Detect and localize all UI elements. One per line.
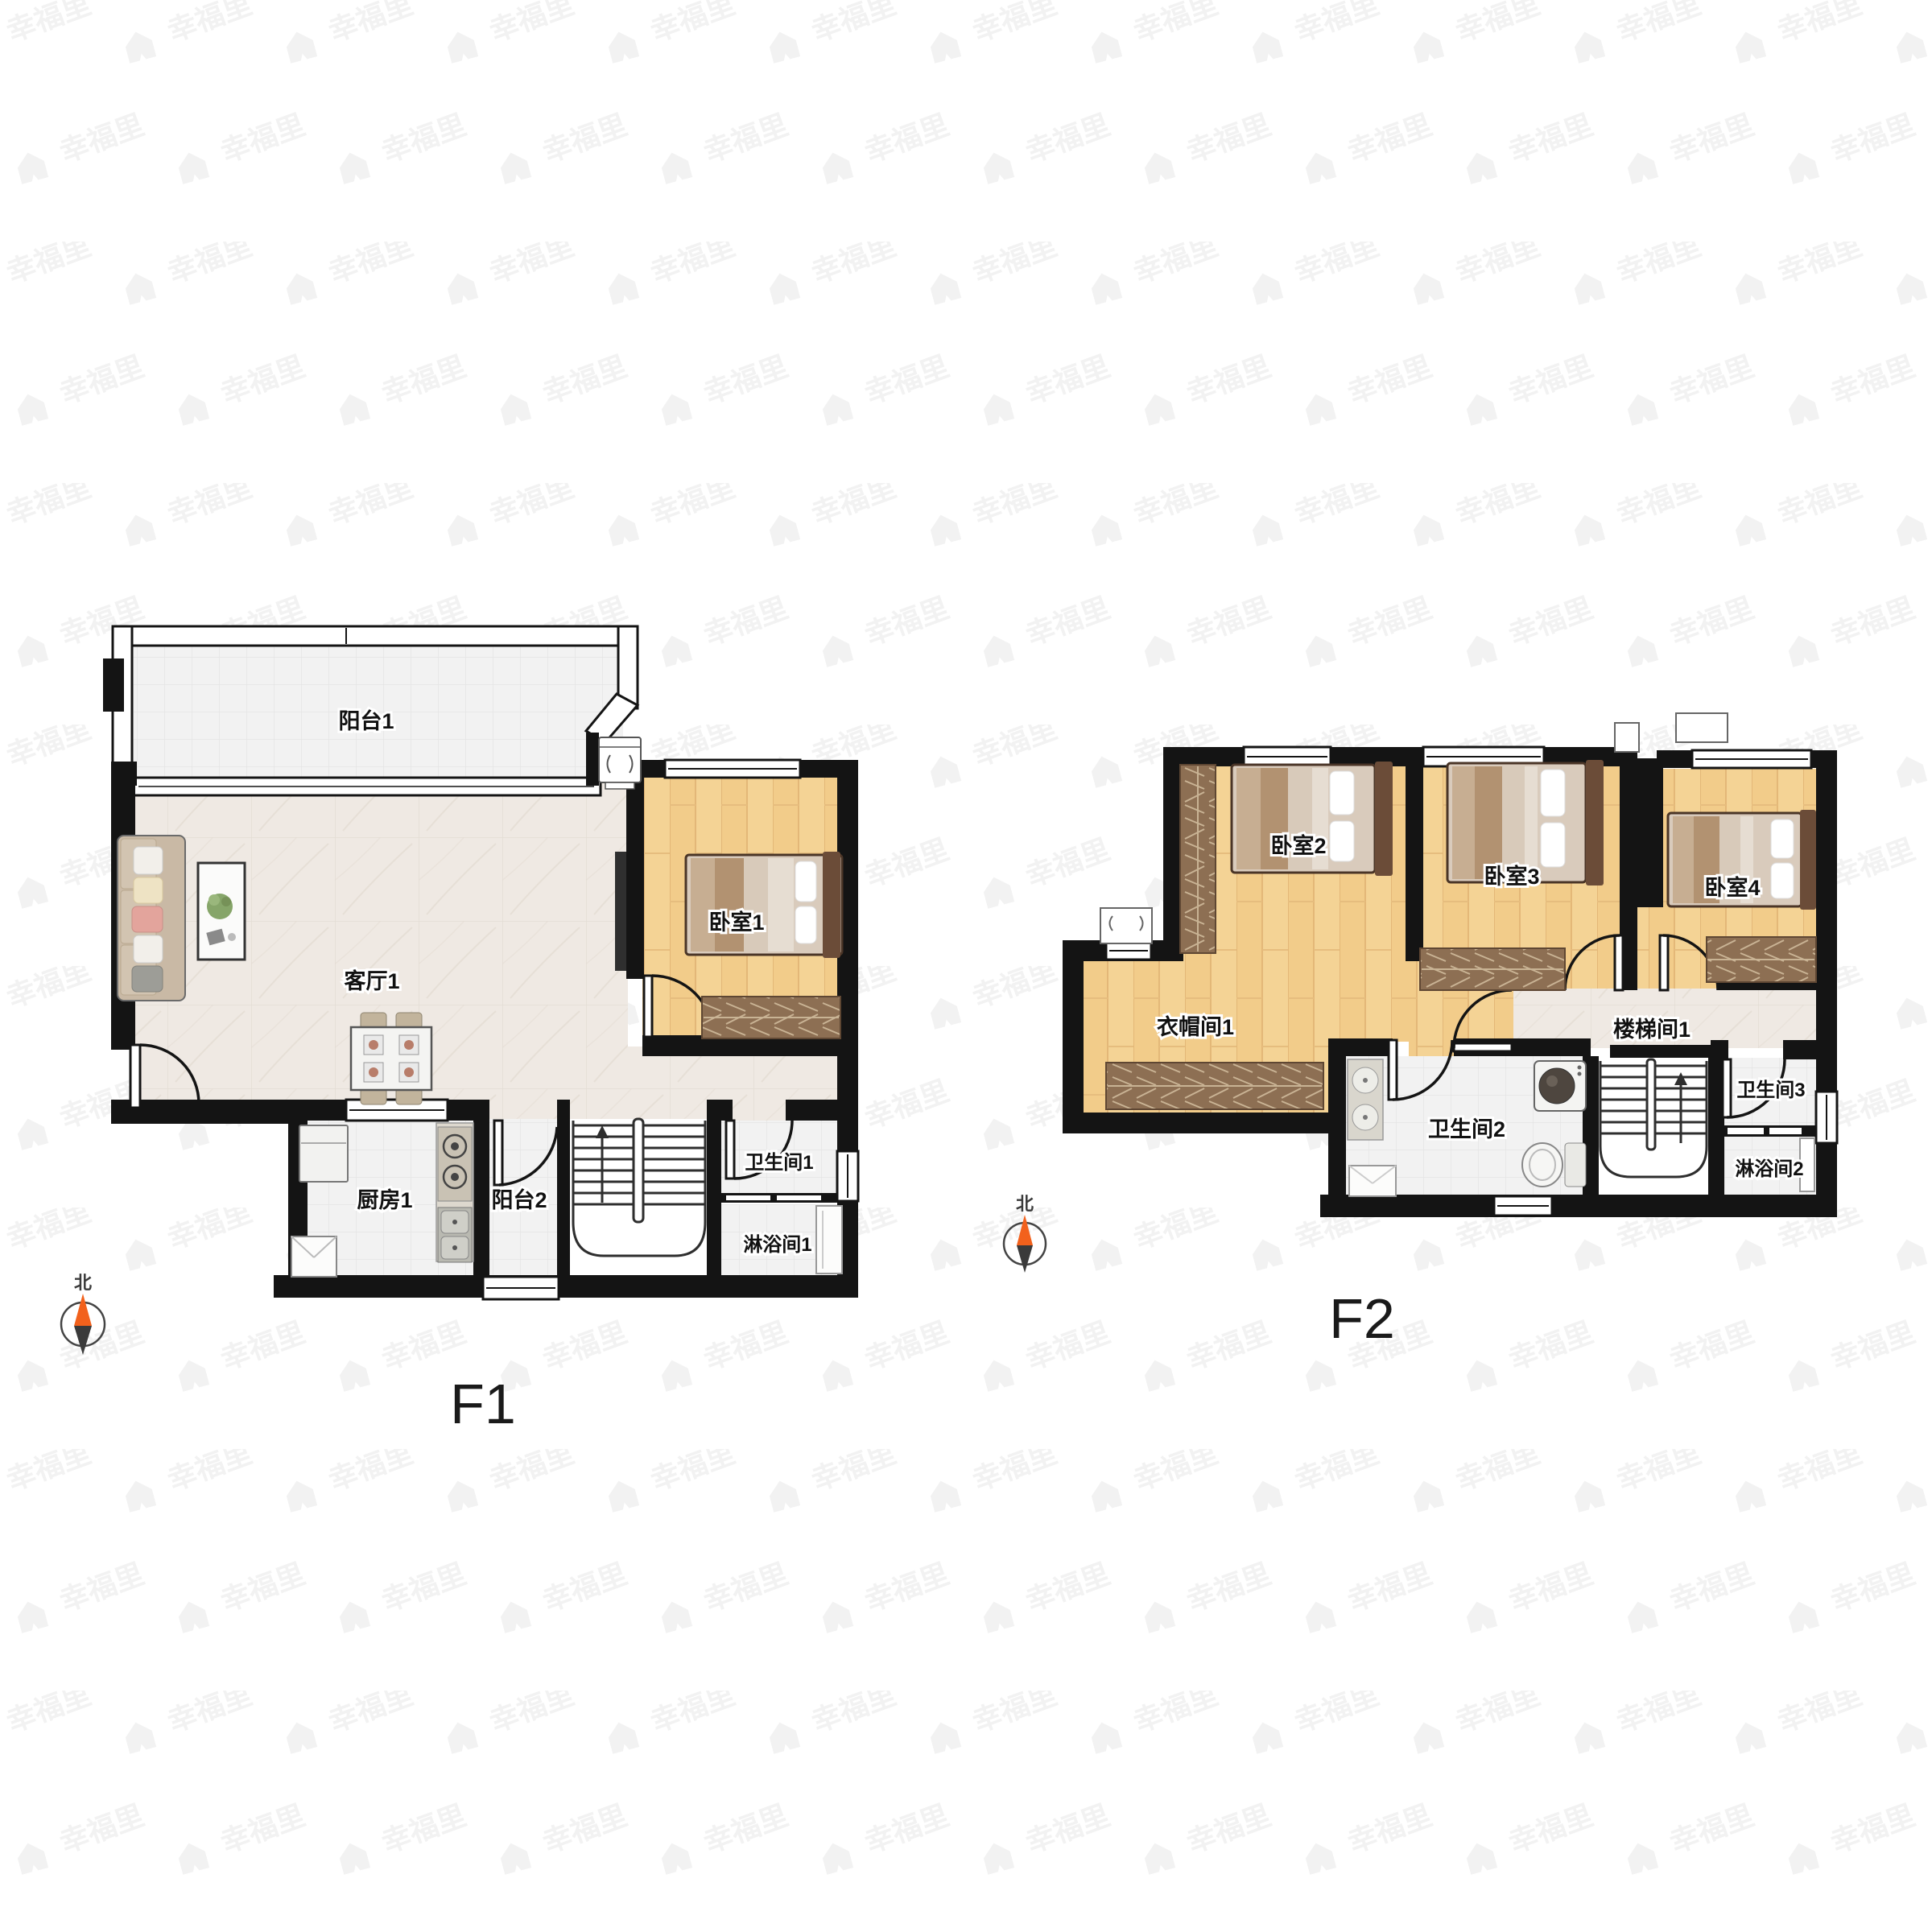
- vanity-sink-icon: [1348, 1059, 1383, 1140]
- room-label-cloakroom-1: 衣帽间1: [1157, 1014, 1234, 1039]
- room-label-shower-1: 淋浴间1: [743, 1234, 811, 1256]
- bed-icon: [1232, 762, 1393, 876]
- toilet-icon: [1522, 1143, 1586, 1187]
- washing-machine-icon: [1534, 1061, 1586, 1111]
- corner-cabinet-icon: [291, 1236, 336, 1277]
- tv-icon: [615, 852, 626, 971]
- ac-unit-icon: [1100, 908, 1152, 943]
- room-label-kitchen-1: 厨房1: [357, 1188, 412, 1212]
- floor-title-f1: F1: [450, 1373, 516, 1435]
- sink-icon: [438, 1207, 472, 1262]
- floor-plan-image: 幸福里 幸福里 幸福里 幸福里: [0, 0, 1932, 1932]
- room-label-bathroom-2: 卫生间2: [1428, 1117, 1505, 1141]
- corner-shelf-icon: [1349, 1166, 1396, 1196]
- room-label-shower-2: 淋浴间2: [1735, 1158, 1803, 1180]
- fridge-icon: [299, 1125, 348, 1182]
- north-label: 北: [74, 1273, 92, 1293]
- room-label-bathroom-1: 卫生间1: [745, 1152, 813, 1174]
- ac-unit-icon: [1676, 713, 1728, 742]
- bed-icon: [686, 852, 842, 958]
- floor-plan-canvas: 幸福里 幸福里 幸福里 幸福里: [0, 0, 1932, 1932]
- room-label-balcony-2: 阳台2: [491, 1187, 547, 1212]
- shower-fixture-icon: [816, 1206, 842, 1274]
- room-label-stairwell-1: 楼梯间1: [1613, 1018, 1690, 1042]
- wardrobe-icon: [1180, 765, 1216, 953]
- dining-table-icon: [351, 1013, 431, 1104]
- wardrobe-icon: [1707, 937, 1816, 982]
- coffee-table-icon: [198, 863, 245, 960]
- sofa-icon: [118, 836, 185, 1001]
- room-label-balcony-1: 阳台1: [338, 708, 394, 733]
- room-label-bedroom-1: 卧室1: [708, 910, 764, 935]
- wardrobe-icon: [1420, 948, 1565, 990]
- room-label-bedroom-4: 卧室4: [1704, 875, 1760, 900]
- wardrobe-icon: [702, 997, 840, 1038]
- ac-unit-icon: [1615, 723, 1639, 752]
- washing-machine-icon: [599, 737, 641, 789]
- north-label: 北: [1016, 1194, 1034, 1214]
- room-label-bedroom-3: 卧室3: [1484, 864, 1539, 889]
- floor-title-f2: F2: [1329, 1287, 1395, 1350]
- room-label-bedroom-2: 卧室2: [1270, 833, 1326, 858]
- room-label-bathroom-3: 卫生间3: [1736, 1080, 1805, 1101]
- room-label-living-room-1: 客厅1: [344, 968, 399, 993]
- wardrobe-icon: [1106, 1063, 1323, 1109]
